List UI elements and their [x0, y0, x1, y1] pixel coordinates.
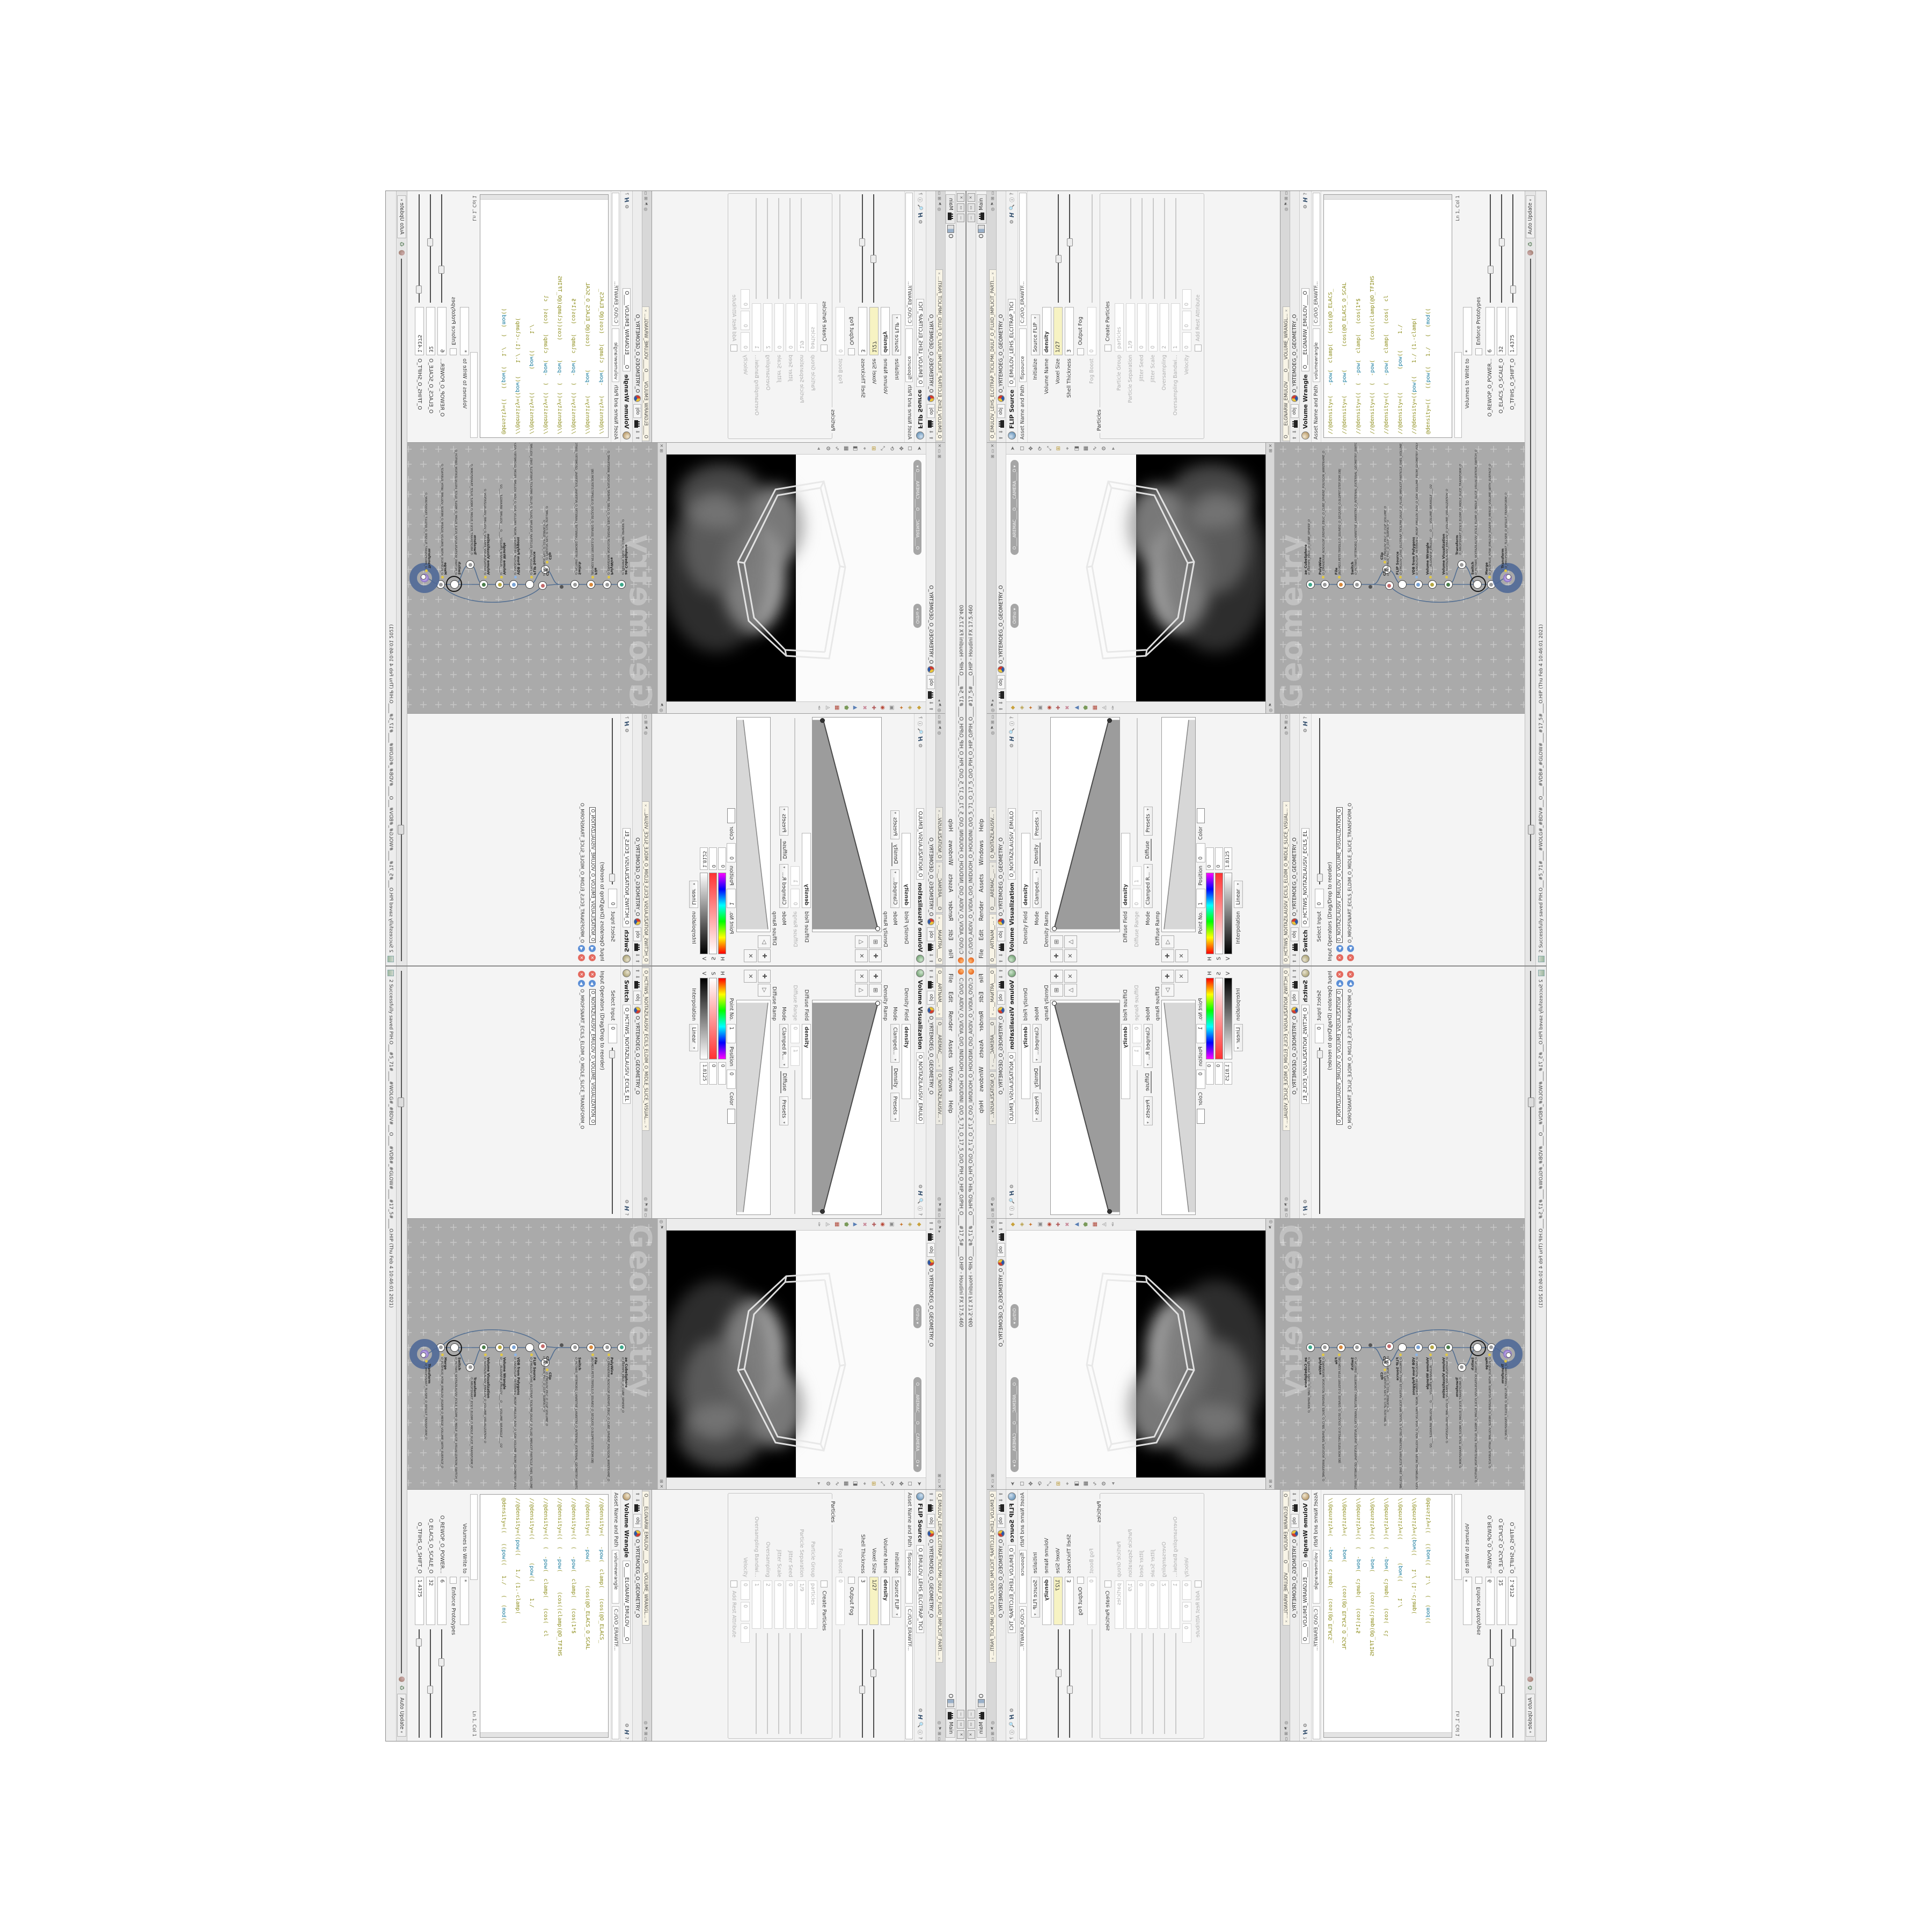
network-node[interactable] [466, 560, 474, 569]
nav-down-icon[interactable]: ⬇ [635, 430, 640, 434]
param-slider[interactable] [416, 193, 423, 304]
node-name-field[interactable]: O_EMULOV_LEHS_ELCITRAP_TICI [1008, 1545, 1016, 1633]
desktop-selector[interactable]: Main [946, 194, 956, 224]
pane-linker-icon[interactable]: ◎ [643, 731, 648, 735]
checkbox[interactable] [848, 348, 855, 355]
param-field[interactable]: 2 [1160, 1580, 1169, 1629]
nav-down-icon[interactable]: ⬇ [1292, 953, 1298, 957]
brain-icon[interactable] [399, 250, 405, 255]
pane-max-icon[interactable]: ▭ [990, 1479, 995, 1483]
param-slider[interactable] [428, 193, 434, 304]
network-node[interactable] [1385, 1342, 1394, 1351]
checkbox[interactable] [1077, 348, 1084, 355]
param-slider[interactable] [1498, 1628, 1505, 1739]
asset-path-field[interactable]: C:/O/O_ERAWTF... [1019, 193, 1027, 326]
nav-down-icon[interactable]: ⬇ [928, 975, 934, 979]
network-node[interactable] [1353, 1343, 1362, 1352]
viewport-canvas[interactable]: Ortho ▾ O____AREMAC____O____CAMERA____O … [1006, 455, 1265, 701]
pane-tab[interactable]: O____ELGNARW_EMULOV____O____VOLUME_WRANG… [1283, 306, 1290, 441]
interpolation-dropdown[interactable]: Linear [1234, 881, 1243, 908]
pane-tab[interactable]: O_NOITAZILAUSIV...✕ [936, 1071, 943, 1125]
timeline-slider[interactable] [1528, 259, 1533, 961]
pane-close-icon[interactable]: ✕ [1268, 444, 1273, 448]
recook-icon[interactable]: ♻ [398, 241, 405, 247]
desktop-selector[interactable]: Main [977, 194, 986, 224]
pane-tab[interactable]: O____AREMAC__...✕ [989, 862, 996, 913]
param-field[interactable]: particles [1115, 1580, 1124, 1629]
menu-item[interactable]: Render [947, 897, 955, 925]
close-tab-icon[interactable]: ✕ [643, 1125, 647, 1128]
network-node[interactable] [495, 580, 504, 589]
menu-o-label[interactable]: O [978, 234, 985, 238]
param-slider[interactable] [1487, 193, 1494, 304]
value-value[interactable]: 1.8125 [700, 847, 708, 870]
node-name-field[interactable]: O____ELGNARW_EMULOV____O [1301, 288, 1309, 372]
network-node[interactable] [1473, 580, 1482, 589]
viewport-tool-icon[interactable]: ◨ [1074, 446, 1080, 451]
network-node[interactable] [509, 580, 518, 589]
viewport-tool-icon[interactable]: ⟳ [889, 446, 894, 450]
node-name-field[interactable]: O_NOITAZILAUSIV_EMULO [916, 1052, 924, 1124]
network-node[interactable] [570, 1343, 579, 1352]
pane-close-icon[interactable]: ✕ [990, 444, 995, 448]
close-tab-icon[interactable]: ✕ [991, 1657, 995, 1660]
viewport-tool-icon[interactable]: ▸ [1111, 1482, 1116, 1485]
breadcrumb-path[interactable]: O_YRTEMOEG_O_GEOMETRY_O [998, 1016, 1004, 1095]
pane-split-icon[interactable]: ⊞ [990, 197, 995, 201]
param-slider[interactable] [1150, 1632, 1157, 1735]
pane-max-icon[interactable]: ▭ [643, 1737, 648, 1741]
asset-path-field[interactable]: C:/O/O_ERAWTF... [906, 193, 913, 326]
breadcrumb-root[interactable]: obj [997, 927, 1005, 941]
viewport-canvas[interactable]: Ortho ▾ O____AREMAC____O____CAMERA____O … [1006, 1231, 1265, 1477]
pane-linker-icon[interactable]: ◎ [937, 1721, 942, 1725]
close-tab-icon[interactable]: ✕ [937, 1119, 941, 1122]
ramp-delete-button[interactable]: ✕ [1175, 949, 1188, 962]
ramp-delete-button[interactable]: ✕ [855, 949, 868, 962]
viewport-tool-icon[interactable]: ▣ [889, 1222, 894, 1227]
pane-max-icon[interactable]: ▭ [990, 191, 995, 195]
close-button[interactable]: ✕ [957, 1730, 965, 1739]
param-field[interactable]: 1.4375 [1508, 1577, 1517, 1625]
nav-up-icon[interactable]: ⬆ [999, 1221, 1004, 1225]
diffuse-range-lo[interactable]: 0 [791, 889, 800, 908]
position-field[interactable]: 0 [1196, 1070, 1205, 1089]
param-field[interactable]: 32 [426, 307, 435, 355]
auto-update-dropdown[interactable]: Auto Update▾ [1526, 1694, 1535, 1737]
auto-update-dropdown[interactable]: Auto Update▾ [1526, 195, 1535, 238]
diffuse-range-lo[interactable]: 0 [1132, 1024, 1141, 1043]
pane-linker-icon[interactable]: ◎ [937, 1197, 942, 1201]
node-name-field[interactable]: O_EMULOV_LEHS_ELCITRAP_TICI [916, 1545, 924, 1633]
pane-pin-icon[interactable]: ⚑ [990, 1225, 995, 1229]
close-tab-icon[interactable]: ✕ [991, 272, 995, 275]
param-slider[interactable] [1498, 193, 1505, 304]
ramp-delete-button[interactable]: ✕ [1064, 949, 1077, 962]
param-field[interactable]: 1/27 [1053, 307, 1063, 355]
pane-linker-icon[interactable]: ◎ [990, 207, 995, 211]
brain-icon[interactable] [1527, 250, 1533, 255]
pane-pin-icon[interactable]: ⚑ [1284, 726, 1289, 729]
presets-dropdown[interactable]: Presets [1144, 1096, 1153, 1125]
presets-dropdown[interactable]: Presets [779, 1096, 788, 1125]
density-tab[interactable]: Density [1034, 843, 1041, 866]
pane-split-icon[interactable]: ⊞ [937, 1474, 942, 1477]
param-field[interactable]: 6 [1485, 1577, 1495, 1625]
pane-linker-icon[interactable]: ◎ [990, 1220, 995, 1224]
pane-pin-icon[interactable]: ⚑ [990, 1726, 995, 1730]
hue-slider[interactable] [1206, 978, 1214, 1059]
color-swatch[interactable] [728, 1109, 736, 1124]
menu-o-label[interactable]: O [978, 1694, 985, 1698]
info-icon[interactable]: ⓘ [1008, 721, 1015, 726]
ramp-box-button[interactable]: ⊞ [869, 984, 882, 997]
help-icon[interactable]: ? [1009, 193, 1015, 195]
checkbox[interactable] [1104, 345, 1111, 352]
breadcrumb-root[interactable]: obj [997, 675, 1005, 689]
network-canvas[interactable]: Geometry ae_CubeSphereO_EREHPS_EBUC_O_CU… [406, 1219, 657, 1489]
pane-split-icon[interactable]: ⊞ [643, 1208, 648, 1212]
viewport-tool-icon[interactable]: ⌖ [861, 1482, 867, 1485]
snippet-field[interactable] [470, 352, 478, 438]
menu-item[interactable]: Help [977, 815, 986, 836]
help-icon[interactable]: ? [624, 1737, 630, 1739]
breadcrumb-path[interactable]: O_YRTEMOEG_O_GEOMETRY_O [928, 1268, 934, 1347]
menu-item[interactable]: File [947, 970, 955, 987]
mode-dropdown[interactable]: Clamped... [890, 1024, 899, 1063]
presets-dropdown[interactable]: Presets [1144, 807, 1153, 836]
param-field[interactable]: 1 [752, 1580, 761, 1629]
nav-up-icon[interactable]: ⬆ [1292, 959, 1298, 963]
pane-linker-icon[interactable]: ◎ [937, 708, 942, 712]
viewport-tool-icon[interactable]: ◬ [1102, 706, 1107, 710]
viewport-tool-icon[interactable]: ◆ [1011, 1223, 1016, 1227]
pane-split-icon[interactable]: ⊞ [659, 449, 664, 453]
network-node[interactable] [525, 580, 534, 589]
pane-play-icon[interactable]: ▸ [937, 699, 942, 701]
breadcrumb-path[interactable]: O_YRTEMOEG_O_GEOMETRY_O [928, 1539, 934, 1618]
ramp-tri-button[interactable]: △ [1064, 935, 1077, 948]
viewport-tool-icon[interactable]: ✦ [1029, 705, 1034, 709]
gear-icon[interactable]: ⚙ [1009, 219, 1015, 224]
nav-up-icon[interactable]: ⬆ [1292, 1492, 1298, 1496]
input-operator-row[interactable]: ✕ ◀ O_NOITAZILAUSIV_EMULOV_O_VOLUME_VISU… [1334, 714, 1345, 965]
node-name-field[interactable]: O____ELGNARW_EMULOV____O [623, 288, 631, 372]
diffuse-field-input[interactable]: density [1121, 833, 1130, 908]
ramp-arrow-button[interactable]: ▷ [758, 984, 771, 997]
network-node[interactable] [560, 585, 563, 589]
node-flag[interactable] [441, 1353, 444, 1356]
param-field[interactable]: 6 [437, 307, 447, 355]
pane-linker-icon[interactable]: ◎ [937, 1220, 942, 1224]
position-field[interactable]: 0 [727, 843, 736, 862]
value-slider[interactable] [1224, 873, 1232, 954]
nav-up-icon[interactable]: ⬆ [999, 1492, 1004, 1496]
viewport-tool-icon[interactable]: ✦ [1029, 1222, 1034, 1226]
breadcrumb-root[interactable]: obj [633, 1514, 641, 1528]
pane-close-icon[interactable]: ✕ [659, 1484, 664, 1488]
param-field[interactable]: 0 [1182, 311, 1191, 330]
checkbox[interactable] [730, 345, 737, 352]
pane-tab[interactable]: O____AREMAC__...✕ [936, 1019, 943, 1070]
pane-linker-icon[interactable]: ◎ [990, 708, 995, 712]
viewport-tool-icon[interactable]: ▦ [1093, 1222, 1098, 1227]
pane-linker-icon[interactable]: ◎ [1268, 1220, 1273, 1224]
gear-icon[interactable]: ⚙ [1009, 743, 1015, 748]
network-node[interactable] [1385, 581, 1394, 590]
network-node[interactable] [603, 1343, 611, 1352]
asset-name-field[interactable]: flipsource [906, 1550, 913, 1604]
param-field[interactable]: 32 [426, 1577, 435, 1625]
nav-up-icon[interactable]: ⬆ [635, 959, 640, 963]
node-flag[interactable] [1399, 1353, 1402, 1356]
presets-dropdown[interactable]: Presets [1033, 810, 1042, 839]
network-canvas[interactable]: Geometry ae_CubeSphereO_EREHPS_EBUC_O_CU… [1275, 1219, 1526, 1489]
value-slider[interactable] [1224, 978, 1232, 1059]
close-button[interactable]: ✕ [957, 193, 965, 202]
node-flag[interactable] [1322, 1353, 1324, 1356]
help-icon[interactable]: ? [624, 1213, 630, 1216]
viewport-tool-icon[interactable]: ⟳ [889, 1481, 894, 1485]
close-tab-icon[interactable]: ✕ [991, 1064, 995, 1067]
menu-o-label[interactable]: O [948, 1694, 954, 1698]
remove-input-icon[interactable]: ✕ [1347, 954, 1354, 961]
node-flag[interactable] [425, 1360, 428, 1363]
mode-dropdown[interactable]: Clamped... [1033, 869, 1042, 908]
pane-tab[interactable]: O_HCTIWS_NOITAZILAUSIV_ECILS_ELDIM_O_MID… [642, 801, 649, 964]
viewport-tool-icon[interactable]: ⬟ [1084, 705, 1089, 710]
param-slider[interactable] [799, 1632, 805, 1735]
value-value[interactable]: 1.8125 [1224, 1062, 1232, 1085]
code-scrollbar[interactable] [1324, 195, 1452, 200]
network-node[interactable] [538, 1342, 547, 1351]
density-ramp-editor[interactable] [812, 1000, 882, 1215]
network-node[interactable] [1414, 580, 1423, 589]
pane-max-icon[interactable]: ▭ [937, 1737, 942, 1741]
timeline-slider[interactable] [1528, 971, 1533, 1673]
maximize-button[interactable]: ▭ [968, 1720, 975, 1729]
viewport-tool-icon[interactable]: ➤ [916, 446, 921, 450]
node-flag[interactable] [1384, 1368, 1386, 1371]
menu-item[interactable]: Help [947, 1096, 955, 1117]
diffuse-field-input[interactable]: density [802, 1024, 811, 1099]
diffuse-mode-dropdown[interactable]: Clamped R... [1144, 1024, 1153, 1068]
param-field[interactable]: 0 [1148, 303, 1158, 352]
diffuse-ramp-editor[interactable] [736, 717, 771, 932]
node-flag[interactable] [514, 576, 517, 579]
param-slider[interactable] [1173, 197, 1179, 300]
param-slider[interactable] [1128, 1632, 1134, 1735]
viewport-canvas[interactable]: Ortho ▾ O____AREMAC____O____CAMERA____O … [667, 455, 926, 701]
gear-icon[interactable]: ⚙ [624, 1199, 630, 1204]
breadcrumb-root[interactable]: obj [1291, 1514, 1299, 1528]
saturation-slider[interactable] [709, 978, 717, 1059]
nav-up-icon[interactable]: ⬆ [999, 707, 1004, 711]
diffuse-mode-dropdown[interactable]: Clamped R... [779, 864, 788, 908]
network-node[interactable] [1458, 1363, 1466, 1372]
viewport-tool-icon[interactable]: ◆ [1011, 706, 1016, 710]
network-node[interactable] [509, 1343, 518, 1352]
viewport-tool-icon[interactable]: ◈ [1020, 706, 1025, 710]
pane-pin-icon[interactable]: ⚑ [659, 703, 664, 707]
param-slider[interactable] [1066, 1628, 1073, 1739]
diffuse-ramp-editor[interactable] [1161, 717, 1196, 932]
info-icon[interactable]: ⓘ [917, 721, 924, 726]
menu-item[interactable]: Windows [977, 837, 986, 869]
node-flag[interactable] [1338, 576, 1341, 579]
viewport-tool-icon[interactable]: ▣ [1038, 705, 1043, 710]
param-field[interactable]: 0 [741, 311, 750, 330]
close-tab-icon[interactable]: ✕ [991, 1119, 995, 1122]
breadcrumb-path[interactable]: O_YRTEMOEG_O_GEOMETRY_O [1292, 314, 1298, 393]
pane-max-icon[interactable]: ▭ [990, 449, 995, 453]
param-field[interactable]: 1/27 [869, 307, 879, 355]
density-field-input[interactable]: density [1021, 833, 1030, 908]
nav-down-icon[interactable]: ⬇ [928, 1498, 934, 1503]
pane-tab[interactable]: O_NOITAZILAUSIV...✕ [936, 807, 943, 861]
pane-tab[interactable]: O_EMULOV_LEHS_ELCITRAP_TICILPMI_DIULF_O_… [936, 1491, 943, 1663]
asset-name-field[interactable]: volumewrangle [612, 328, 620, 382]
asset-path-field[interactable]: C:/O/O_ERAWTF... [1313, 1606, 1320, 1739]
network-node[interactable] [1458, 560, 1466, 569]
viewport-tool-icon[interactable]: ✚ [1056, 705, 1062, 709]
gear-icon[interactable]: ⚙ [918, 1184, 923, 1189]
pane-max-icon[interactable]: ▭ [1284, 1737, 1289, 1741]
nav-down-icon[interactable]: ⬇ [928, 1227, 934, 1232]
presets-dropdown[interactable]: Presets [1033, 1093, 1042, 1122]
input-operator-row[interactable]: ✕ ◀ O_MROFSNART_ECILS_ELDIM_O_MIDLE_SLIC… [576, 967, 587, 1218]
pane-split-icon[interactable]: ⊞ [1284, 197, 1289, 201]
gear-icon[interactable]: ⚙ [918, 219, 923, 224]
snippet-field[interactable] [1454, 1494, 1462, 1580]
pane-split-icon[interactable]: ⊞ [1268, 1480, 1273, 1483]
nav-up-icon[interactable]: ⬆ [928, 1221, 934, 1225]
pane-split-icon[interactable]: ⊞ [659, 1480, 664, 1483]
viewport-tool-icon[interactable]: ⬟ [1084, 1222, 1089, 1227]
param-field[interactable]: 0 [741, 1623, 750, 1643]
param-field[interactable]: 0 [1087, 1577, 1096, 1625]
close-tab-icon[interactable]: ✕ [937, 865, 941, 868]
param-slider[interactable] [837, 193, 844, 304]
pane-max-icon[interactable]: ▭ [937, 191, 942, 195]
param-field[interactable]: 6 [1485, 307, 1495, 355]
desktop-layout-icon[interactable] [947, 225, 954, 233]
viewport-tool-icon[interactable]: ∿ [1093, 1481, 1098, 1485]
close-button[interactable]: ✕ [968, 193, 975, 202]
viewport-tool-icon[interactable]: ◈ [907, 1223, 912, 1227]
param-field[interactable]: density [881, 307, 890, 355]
menu-item[interactable]: Assets [977, 1036, 986, 1062]
param-field[interactable]: 0 [786, 303, 795, 352]
param-field[interactable]: density [1042, 1577, 1051, 1625]
ramp-add-button[interactable]: ✚ [758, 949, 771, 962]
density-ramp-editor[interactable] [1050, 1000, 1120, 1215]
node-flag[interactable] [1322, 576, 1324, 579]
close-tab-icon[interactable]: ✕ [991, 1013, 995, 1015]
param-dropdown[interactable]: Source FLIP [892, 1577, 901, 1618]
pane-max-icon[interactable]: ▭ [990, 715, 995, 719]
pane-close-icon[interactable]: ✕ [937, 444, 942, 448]
nav-up-icon[interactable]: ⬆ [999, 969, 1004, 973]
viewport-tool-icon[interactable]: ◨ [1074, 1481, 1080, 1486]
breadcrumb-root[interactable]: obj [1291, 991, 1299, 1005]
diffuse-range-hi[interactable]: 1 [791, 1046, 800, 1066]
pane-close-icon[interactable]: ✕ [990, 1484, 995, 1488]
input-operator-row[interactable]: ✕ ◀ O_NOITAZILAUSIV_EMULOV_O_VOLUME_VISU… [587, 967, 598, 1218]
node-flag[interactable] [608, 576, 610, 579]
param-slider[interactable] [416, 1628, 423, 1739]
pane-pin-icon[interactable]: ⚑ [643, 726, 648, 729]
breadcrumb-root[interactable]: obj [997, 404, 1005, 418]
help-icon[interactable]: ? [1303, 1213, 1308, 1216]
param-field[interactable]: 1/27 [869, 1577, 879, 1625]
breadcrumb-root[interactable]: obj [927, 404, 935, 418]
gear-icon[interactable]: ⚙ [918, 743, 923, 748]
point-no-field[interactable]: 1 [1196, 889, 1205, 908]
viewport-tool-icon[interactable]: ▣ [889, 705, 894, 710]
ramp-arrow-button[interactable]: ▷ [758, 935, 771, 948]
viewport-tool-icon[interactable]: ▲ [1074, 1223, 1080, 1227]
magnifier-icon[interactable]: 🔍 [918, 1198, 923, 1204]
minimize-button[interactable]: — [968, 1710, 975, 1718]
menu-item[interactable]: Edit [977, 988, 986, 1006]
menu-item[interactable]: File [977, 945, 986, 962]
ramp-box-button[interactable]: ⊞ [869, 935, 882, 948]
param-slider[interactable] [860, 193, 866, 304]
viewport-tool-icon[interactable]: ▦ [843, 446, 848, 451]
param-slider[interactable] [1173, 1632, 1179, 1735]
menu-item[interactable]: Edit [947, 926, 955, 944]
node-name-field[interactable]: O_NOITAZILAUSIV_EMULO [1008, 808, 1016, 880]
param-slider[interactable] [799, 197, 805, 300]
network-node[interactable] [1321, 580, 1329, 589]
remove-input-icon[interactable]: ✕ [589, 971, 596, 978]
close-tab-icon[interactable]: ✕ [937, 810, 941, 813]
viewport-tool-icon[interactable]: ▦ [834, 1222, 839, 1227]
viewport-tool-icon[interactable]: ⬟ [843, 705, 848, 710]
color-swatch[interactable] [1197, 808, 1205, 823]
diffuse-range-lo[interactable]: 0 [1132, 889, 1141, 908]
pane-close-icon[interactable]: ✕ [659, 444, 664, 448]
viewport-tool-icon[interactable]: ✚ [1056, 1222, 1062, 1226]
vex-code-editor[interactable]: //@density=( -pow( clamp( (cos(@O_ELACS_… [1323, 1494, 1452, 1738]
nav-up-icon[interactable]: ⬆ [1292, 436, 1298, 440]
select-input-field[interactable]: 0 [1315, 889, 1324, 908]
viewport-tool-icon[interactable]: ⊞ [870, 1481, 876, 1485]
pane-tab[interactable]: O_HCTIWS_NOITAZILAUSIV_ECILS_ELDIM_O_MID… [642, 968, 649, 1131]
pane-linker-icon[interactable]: ◎ [1284, 731, 1289, 735]
pane-max-icon[interactable]: ▭ [1284, 715, 1289, 719]
viewport-tool-icon[interactable]: ◈ [1020, 1223, 1025, 1227]
help-icon[interactable]: ? [918, 1213, 923, 1216]
param-field[interactable]: 32 [1497, 307, 1506, 355]
pane-linker-icon[interactable]: ◎ [990, 731, 995, 735]
param-field[interactable]: 0 [786, 1580, 795, 1629]
network-node[interactable] [1444, 580, 1453, 589]
nav-down-icon[interactable]: ⬇ [1292, 430, 1298, 434]
network-node[interactable] [420, 1350, 429, 1358]
param-field[interactable]: 0 [1087, 307, 1096, 355]
network-node[interactable] [1398, 1343, 1407, 1352]
pane-pin-icon[interactable]: ⚑ [1268, 703, 1273, 707]
param-field[interactable]: 1 [752, 303, 761, 352]
select-input-field[interactable]: 0 [608, 1024, 617, 1043]
node-flag[interactable] [530, 576, 533, 579]
viewport-tool-icon[interactable]: ◈ [907, 706, 912, 710]
pane-tab[interactable]: O_NOITAZILAUSIV...✕ [989, 807, 996, 861]
ramp-box-button[interactable]: ⊞ [1050, 935, 1063, 948]
pane-pin-icon[interactable]: ⚑ [1284, 202, 1289, 206]
